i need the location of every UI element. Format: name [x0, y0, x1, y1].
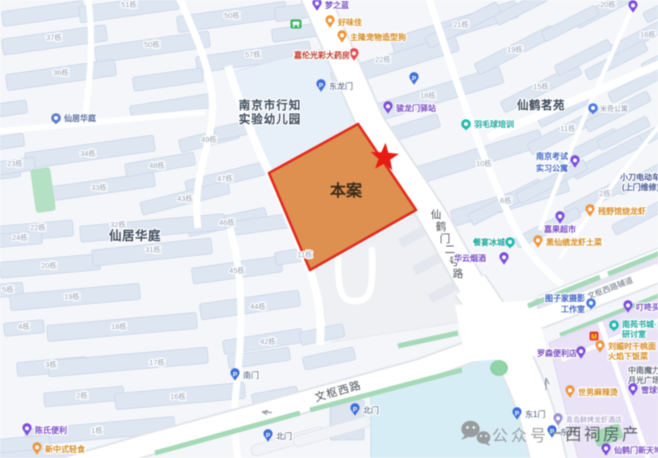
- svg-text:中南魔力方: 中南魔力方: [628, 365, 658, 375]
- svg-text:本案: 本案: [330, 181, 363, 200]
- svg-text:20栋: 20栋: [600, 0, 616, 9]
- svg-text:44栋: 44栋: [250, 301, 266, 311]
- svg-text:工作室: 工作室: [561, 304, 585, 314]
- svg-text:36栋: 36栋: [53, 67, 69, 77]
- svg-text:49栋: 49栋: [201, 134, 217, 144]
- svg-text:M: M: [591, 334, 597, 341]
- svg-text:南苑书城·自习: 南苑书城·自习: [622, 319, 658, 329]
- svg-text:50栋: 50栋: [144, 39, 160, 49]
- svg-text:骏龙门驿站: 骏龙门驿站: [396, 103, 436, 113]
- svg-text:嘉伦光彩大药房: 嘉伦光彩大药房: [293, 50, 350, 60]
- svg-text:公众号: 公众号: [492, 427, 549, 445]
- svg-text:50栋: 50栋: [224, 10, 240, 20]
- svg-text:2栋: 2栋: [599, 188, 611, 198]
- svg-text:34栋: 34栋: [80, 148, 96, 158]
- svg-text:黑仙绩龙虾土菜: 黑仙绩龙虾土菜: [546, 237, 602, 247]
- svg-text:18栋: 18栋: [420, 90, 436, 100]
- svg-text:鹤: 鹤: [436, 220, 447, 233]
- svg-text:51栋: 51栋: [121, 0, 137, 9]
- svg-text:6栋: 6栋: [500, 195, 512, 205]
- svg-text:43栋: 43栋: [177, 193, 193, 203]
- svg-text:火焰下饭菜: 火焰下饭菜: [608, 351, 648, 361]
- svg-text:仙鹤门新天地: 仙鹤门新天地: [614, 445, 658, 455]
- svg-text:46栋: 46栋: [219, 217, 235, 227]
- svg-text:小刀电动车专卖店: 小刀电动车专卖店: [619, 172, 658, 182]
- svg-text:仙鹤茗苑: 仙鹤茗苑: [517, 98, 565, 112]
- svg-text:21栋: 21栋: [453, 19, 469, 29]
- svg-text:好味佳: 好味佳: [337, 17, 362, 27]
- svg-text:(上门维修): (上门维修): [622, 182, 658, 192]
- svg-text:嘉果超市: 嘉果超市: [543, 224, 576, 234]
- svg-text:主隆宠物造型狗: 主隆宠物造型狗: [350, 32, 406, 42]
- svg-text:米奇公寓: 米奇公寓: [600, 104, 628, 113]
- svg-text:雪球攀岩: 雪球攀岩: [641, 385, 658, 395]
- svg-text:20栋: 20栋: [41, 260, 57, 270]
- svg-text:世男麻辣烫: 世男麻辣烫: [578, 387, 619, 397]
- svg-text:实习公寓: 实习公寓: [536, 163, 568, 173]
- svg-text:23栋: 23栋: [7, 158, 23, 168]
- svg-text:北门: 北门: [276, 431, 292, 441]
- svg-text:新中式轻食: 新中式轻食: [45, 444, 86, 454]
- svg-text:19栋: 19栋: [507, 44, 523, 54]
- svg-text:羽毛球培训: 羽毛球培训: [474, 119, 514, 129]
- svg-text:1栋: 1栋: [91, 425, 103, 435]
- svg-text:罗森便利店: 罗森便利店: [537, 348, 577, 358]
- svg-text:24栋: 24栋: [12, 232, 28, 242]
- svg-text:研讨室: 研讨室: [622, 329, 646, 339]
- svg-text:18栋: 18栋: [111, 321, 127, 331]
- svg-text:10栋: 10栋: [476, 158, 492, 168]
- svg-text:刘媚时干桃面: 刘媚时干桃面: [608, 341, 656, 351]
- svg-text:4栋: 4栋: [18, 321, 30, 331]
- svg-text:16栋: 16栋: [170, 391, 186, 401]
- svg-text:仙居华庭: 仙居华庭: [109, 228, 161, 243]
- svg-text:仙: 仙: [431, 208, 442, 221]
- svg-text:31栋: 31栋: [145, 244, 161, 254]
- svg-text:45栋: 45栋: [229, 265, 245, 275]
- svg-text:22栋: 22栋: [30, 222, 46, 232]
- svg-text:57栋: 57栋: [245, 49, 261, 59]
- svg-text:叮咚买菜: 叮咚买菜: [636, 302, 658, 312]
- svg-text:5栋: 5栋: [2, 284, 14, 294]
- svg-text:梦之蓝: 梦之蓝: [324, 0, 349, 10]
- svg-text:11栋: 11栋: [297, 249, 313, 259]
- svg-text:15栋: 15栋: [533, 81, 549, 91]
- svg-text:东1门: 东1门: [525, 409, 545, 419]
- svg-text:西祠房产: 西祠房产: [565, 425, 641, 444]
- svg-text:22栋: 22栋: [375, 54, 391, 64]
- svg-text:残野馆烧龙虾: 残野馆烧龙虾: [598, 206, 646, 216]
- svg-text:仙居华庭: 仙居华庭: [64, 113, 97, 123]
- svg-text:青岛鲜烤龙虾酒店: 青岛鲜烤龙虾酒店: [566, 415, 622, 424]
- svg-text:32栋: 32栋: [110, 219, 126, 229]
- svg-text:42栋: 42栋: [260, 336, 276, 346]
- svg-text:19栋: 19栋: [64, 291, 80, 301]
- svg-text:2栋: 2栋: [76, 390, 88, 400]
- svg-text:37栋: 37栋: [46, 32, 62, 42]
- svg-text:图子家摄影: 图子家摄影: [545, 293, 585, 303]
- svg-text:47栋: 47栋: [217, 173, 233, 183]
- svg-text:实验幼儿园: 实验幼儿园: [239, 112, 302, 126]
- svg-text:16栋: 16栋: [640, 29, 656, 39]
- svg-text:南京考试: 南京考试: [536, 151, 568, 161]
- svg-text:华云烟酒: 华云烟酒: [454, 253, 486, 263]
- svg-text:3栋: 3栋: [45, 359, 57, 369]
- svg-text:陈氏便利: 陈氏便利: [35, 425, 67, 435]
- svg-text:33栋: 33栋: [91, 182, 107, 192]
- svg-text:东龙门: 东龙门: [329, 81, 353, 91]
- svg-text:北门: 北门: [363, 405, 379, 415]
- svg-text:南门: 南门: [243, 370, 259, 380]
- svg-text:17栋: 17栋: [149, 357, 165, 367]
- svg-text:48栋: 48栋: [149, 160, 165, 170]
- svg-text:餐宴冰城: 餐宴冰城: [472, 237, 505, 247]
- svg-text:路: 路: [453, 267, 464, 280]
- svg-text:南京市行知: 南京市行知: [239, 98, 302, 112]
- svg-text:11栋: 11栋: [560, 123, 576, 133]
